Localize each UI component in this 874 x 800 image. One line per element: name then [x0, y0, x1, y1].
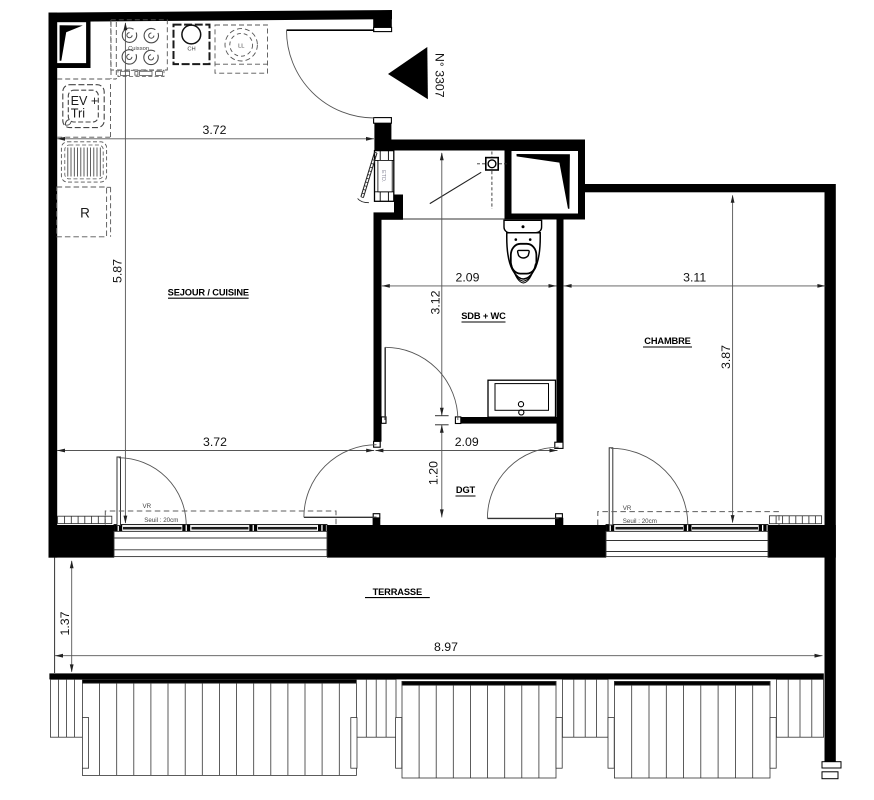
svg-text:Seuil : 20cm: Seuil : 20cm: [623, 518, 657, 525]
svg-text:3.87: 3.87: [719, 345, 733, 369]
svg-text:R: R: [80, 206, 90, 221]
svg-text:8.97: 8.97: [434, 640, 458, 654]
svg-text:CHAMBRE: CHAMBRE: [644, 336, 690, 346]
svg-text:ETD.: ETD.: [380, 170, 386, 182]
svg-text:VR: VR: [623, 505, 632, 512]
svg-text:2.09: 2.09: [456, 270, 480, 284]
svg-text:3.12: 3.12: [429, 290, 443, 314]
svg-text:SEJOUR / CUISINE: SEJOUR / CUISINE: [168, 287, 249, 297]
svg-text:VR: VR: [143, 503, 152, 510]
svg-text:TERRASSE: TERRASSE: [373, 587, 422, 597]
svg-text:CH: CH: [187, 46, 195, 52]
svg-text:Cuisson: Cuisson: [128, 46, 149, 52]
svg-text:N° 3307: N° 3307: [433, 53, 447, 98]
svg-text:1.20: 1.20: [427, 461, 441, 485]
svg-text:3.72: 3.72: [203, 435, 227, 449]
svg-text:SDB + WC: SDB + WC: [461, 311, 506, 321]
svg-text:3.72: 3.72: [203, 123, 227, 137]
svg-text:DGT: DGT: [456, 485, 476, 495]
svg-text:3.11: 3.11: [683, 270, 706, 284]
svg-text:Seuil : 20cm: Seuil : 20cm: [144, 517, 178, 524]
svg-text:5.87: 5.87: [111, 259, 125, 283]
svg-text:2.09: 2.09: [455, 435, 479, 449]
svg-text:Tri: Tri: [71, 106, 85, 120]
svg-text:1.37: 1.37: [58, 611, 72, 635]
svg-text:LL: LL: [238, 44, 245, 50]
